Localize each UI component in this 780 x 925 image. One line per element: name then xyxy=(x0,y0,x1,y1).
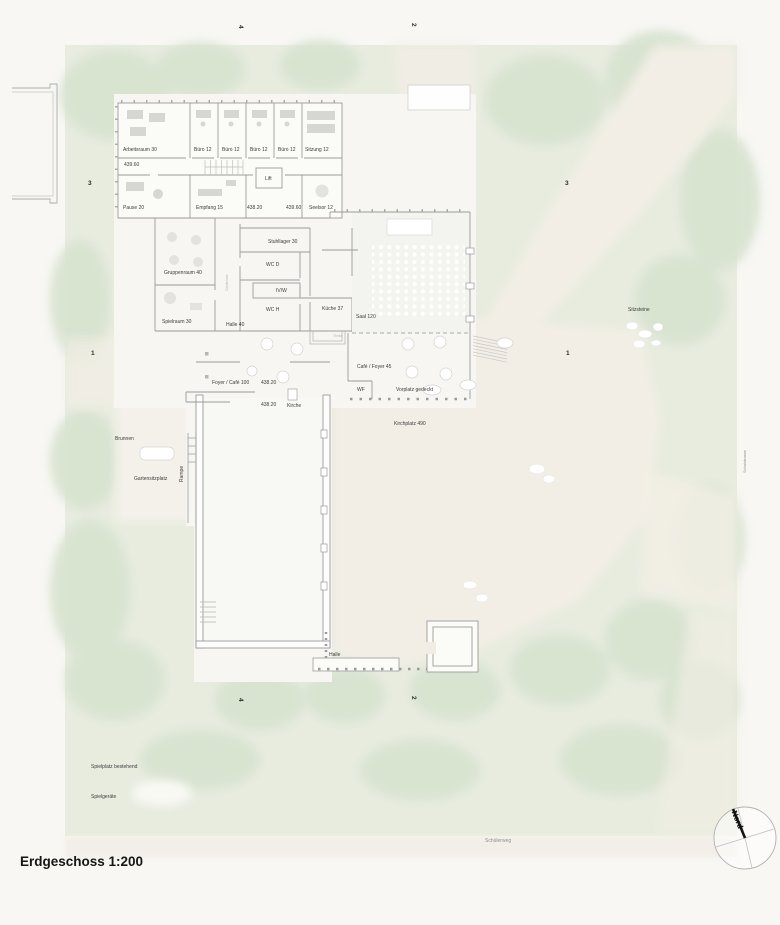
grid-marker-top-2: 2 xyxy=(410,23,417,27)
grid-marker-top-4: 4 xyxy=(237,25,244,29)
ramp xyxy=(188,433,196,523)
lectern xyxy=(288,389,297,400)
kirche-hall xyxy=(186,352,330,648)
room-label-saal: Saal 120 xyxy=(356,315,376,320)
road-label-schulstrasse: Schulstrasse xyxy=(743,450,747,473)
label-spielplatz: Spielplatz bestehend xyxy=(91,765,137,770)
grid-marker-left-3: 3 xyxy=(88,181,92,188)
room-label-buero-3: Büro 12 xyxy=(250,148,268,153)
label-sitzsteine: Sitzsteine xyxy=(628,308,650,313)
room-label-empfang: Empfang 15 xyxy=(196,206,223,211)
room-label-gruppenraum: Gruppenraum 40 xyxy=(164,271,202,276)
saal-chairs xyxy=(372,243,465,317)
label-garderobe: Garderobe xyxy=(226,274,230,291)
room-label-pause: Pause 20 xyxy=(123,206,144,211)
room-label-buero-4: Büro 12 xyxy=(278,148,296,153)
grid-marker-left-1: 1 xyxy=(91,351,95,358)
south-annex xyxy=(313,621,478,672)
saal xyxy=(322,212,474,333)
floor-plan-drawing: Nord xyxy=(0,0,780,925)
room-label-foyer-cafe-100: Foyer / Café 100 xyxy=(212,381,249,386)
level-43820-b: 438.20 xyxy=(261,381,276,386)
level-43960-a: 439.60 xyxy=(124,163,139,168)
label-rampe: Rampe xyxy=(180,466,185,482)
page-title: Erdgeschoss 1:200 xyxy=(20,854,143,869)
floor-plan-sheet: Nord Arbeitsraum 30 Büro 12 Büro 12 Büro… xyxy=(0,0,780,925)
room-label-sitzung: Sitzung 12 xyxy=(305,148,329,153)
room-label-wc-h: WC H xyxy=(266,308,279,313)
room-label-buero-1: Büro 12 xyxy=(194,148,212,153)
label-vorplatz: Vorplatz gedeckt xyxy=(396,388,433,393)
north-arrow-icon: Nord xyxy=(714,807,776,869)
room-label-lift: Lift xyxy=(265,177,272,182)
grid-marker-right-3: 3 xyxy=(565,181,569,188)
room-label-cafe-foyer-45: Café / Foyer 45 xyxy=(357,365,391,370)
road-label-schuelerweg: Schülerweg xyxy=(485,839,511,844)
room-label-kueche: Küche 37 xyxy=(322,307,343,312)
label-kirchplatz: Kirchplatz 490 xyxy=(394,422,426,427)
grid-marker-bottom-4: 4 xyxy=(237,698,244,702)
label-spielgeraete: Spielgeräte xyxy=(91,795,116,800)
room-label-stuhllager: Stuhllager 30 xyxy=(268,240,297,245)
room-label-halle: Halle xyxy=(329,653,340,658)
grid-marker-right-1: 1 xyxy=(566,351,570,358)
room-label-halle-40: Halle 40 xyxy=(226,323,244,328)
label-theke: Theke xyxy=(333,335,343,339)
room-label-arbeitsraum: Arbeitsraum 30 xyxy=(123,148,157,153)
level-43820-a: 438.20 xyxy=(247,206,262,211)
level-43820-c: 438.20 xyxy=(261,403,276,408)
columns xyxy=(205,352,209,379)
room-label-wc-d: WC D xyxy=(266,263,279,268)
label-gartensitzplatz: Gartensitzplatz xyxy=(134,477,167,482)
room-label-spielraum: Spielraum 30 xyxy=(162,320,191,325)
grid-marker-bottom-2: 2 xyxy=(410,696,417,700)
room-label-iv-wc: IV/W xyxy=(276,289,287,294)
label-brunnen: Brunnen xyxy=(115,437,134,442)
level-43960-b: 439.60 xyxy=(286,206,301,211)
neighbour-building-outline xyxy=(12,84,57,203)
room-label-kirche: Kirche xyxy=(287,404,301,409)
room-label-seelsorge: Seelsor 12 xyxy=(309,206,333,211)
room-label-wf: WF xyxy=(357,388,365,393)
room-label-buero-2: Büro 12 xyxy=(222,148,240,153)
fountain xyxy=(140,447,174,460)
